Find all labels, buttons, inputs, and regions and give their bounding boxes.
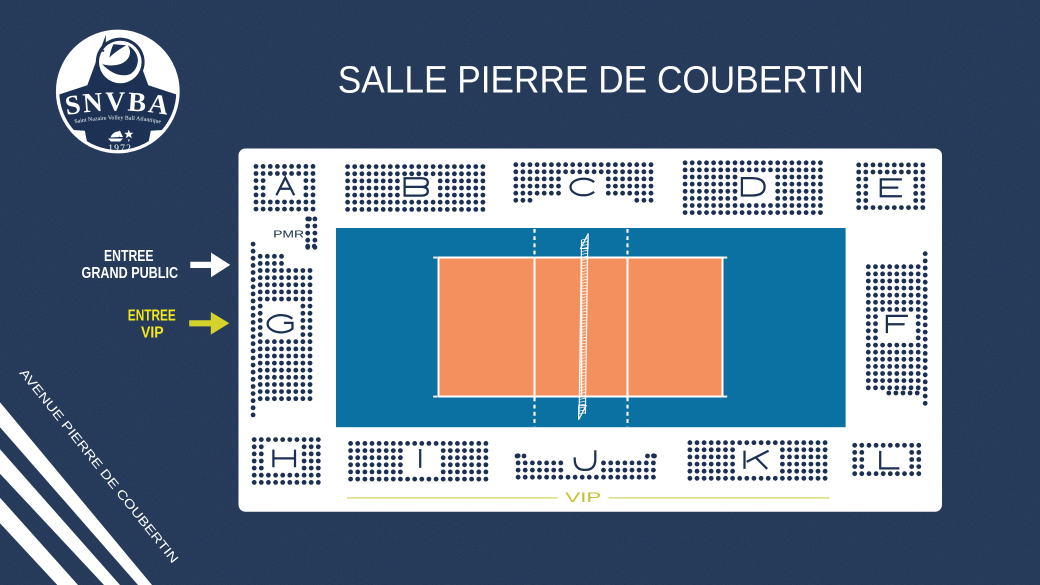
svg-text:GRAND PUBLIC: GRAND PUBLIC	[82, 265, 179, 282]
svg-text:ENTREE: ENTREE	[104, 248, 154, 265]
svg-text:VIP: VIP	[565, 490, 601, 505]
svg-text:SALLE PIERRE DE COUBERTIN: SALLE PIERRE DE COUBERTIN	[338, 60, 864, 102]
svg-text:ENTREE: ENTREE	[128, 307, 176, 324]
svg-text:PMR: PMR	[273, 228, 305, 240]
svg-text:VIP: VIP	[141, 325, 164, 342]
